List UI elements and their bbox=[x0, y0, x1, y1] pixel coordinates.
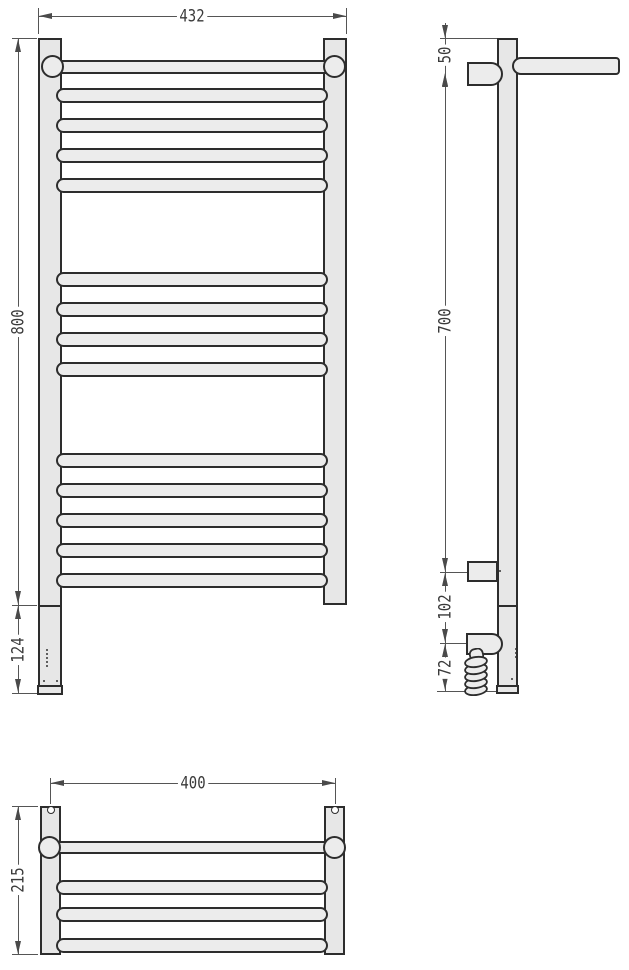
towel-bar bbox=[56, 573, 328, 588]
arrowhead-down bbox=[15, 941, 21, 954]
towel-bar bbox=[56, 483, 328, 498]
extension-line bbox=[38, 8, 39, 34]
arrowhead-up bbox=[15, 606, 21, 619]
left-post-foot bbox=[37, 685, 63, 695]
arrowhead-right bbox=[322, 780, 335, 786]
towel-bar bbox=[56, 272, 328, 287]
towel-bar bbox=[56, 362, 328, 377]
mounting-hole-right bbox=[331, 806, 339, 814]
power-cable-coil bbox=[458, 648, 500, 696]
side-cable-offset-label: 72 bbox=[437, 657, 456, 679]
arrowhead-down bbox=[15, 679, 21, 692]
arrowhead-down bbox=[15, 591, 21, 604]
collector-plug-left bbox=[41, 55, 64, 78]
side-lower-offset-label: 102 bbox=[437, 592, 456, 622]
side-top-offset-label: 50 bbox=[437, 44, 456, 66]
mounting-hole-left bbox=[47, 806, 55, 814]
side-span-label: 700 bbox=[437, 306, 456, 336]
arrowhead-up bbox=[442, 644, 448, 657]
collector-plug-right bbox=[323, 55, 346, 78]
top-rail bbox=[52, 60, 336, 74]
arrowhead-down bbox=[442, 629, 448, 642]
towel-rail-technical-drawing: 432 800 124 bbox=[0, 0, 629, 970]
towel-bar bbox=[56, 148, 328, 163]
towel-bar bbox=[56, 453, 328, 468]
extension-line bbox=[12, 693, 37, 694]
arrowhead-up bbox=[15, 807, 21, 820]
towel-bar bbox=[56, 88, 328, 103]
extension-line bbox=[346, 8, 347, 34]
arrowhead-left bbox=[39, 13, 52, 19]
plan-width-label: 400 bbox=[178, 775, 208, 794]
top-shelf-rail bbox=[512, 57, 620, 75]
plan-collector-left bbox=[38, 836, 61, 859]
left-post-bottom-section bbox=[38, 605, 62, 687]
towel-bar bbox=[56, 178, 328, 193]
arrowhead-left bbox=[51, 780, 64, 786]
towel-bar bbox=[56, 543, 328, 558]
towel-bar bbox=[56, 332, 328, 347]
towel-bar-plan bbox=[56, 907, 328, 922]
towel-bar bbox=[56, 302, 328, 317]
arrowhead-up bbox=[442, 74, 448, 87]
plan-bracket-right bbox=[324, 806, 345, 955]
arrowhead-up bbox=[15, 39, 21, 52]
front-height-label: 800 bbox=[10, 307, 29, 337]
arrowhead-down bbox=[442, 677, 448, 690]
towel-bar-plan bbox=[56, 938, 328, 953]
arrowhead-right bbox=[333, 13, 346, 19]
extension-line bbox=[440, 38, 497, 39]
plan-bracket-left bbox=[40, 806, 61, 955]
front-width-label: 432 bbox=[177, 8, 207, 27]
plan-collector-right bbox=[323, 836, 346, 859]
towel-bar-plan bbox=[56, 880, 328, 895]
extension-line bbox=[12, 954, 38, 955]
towel-bar bbox=[56, 513, 328, 528]
plan-depth-label: 215 bbox=[10, 865, 29, 895]
arrowhead-down bbox=[442, 558, 448, 571]
extension-line bbox=[335, 778, 336, 804]
arrowhead-down bbox=[442, 25, 448, 38]
front-bottom-label: 124 bbox=[10, 635, 29, 665]
towel-bar bbox=[56, 118, 328, 133]
top-wall-bracket bbox=[467, 62, 503, 86]
lower-wall-bracket bbox=[467, 561, 498, 582]
side-post bbox=[497, 38, 518, 607]
arrowhead-up bbox=[442, 573, 448, 586]
plan-top-rail bbox=[55, 841, 330, 854]
